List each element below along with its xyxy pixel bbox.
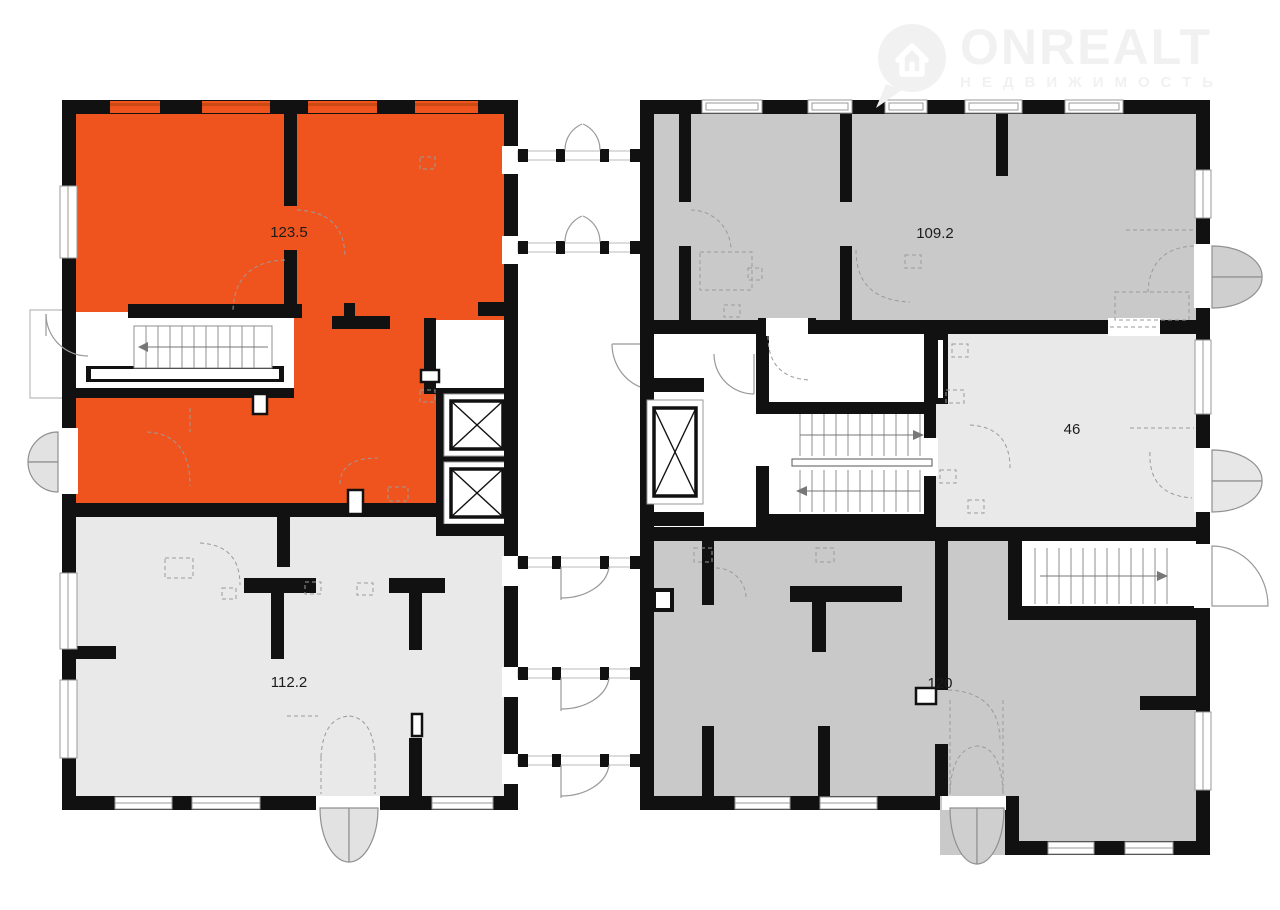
logo-brand-text: ONREALT (960, 22, 1212, 72)
door-leaf (28, 432, 58, 462)
floor-plan-drawing: 123.5 112.2 (0, 0, 1280, 910)
wall-nub-slot (656, 592, 670, 608)
unit-109-2-entrance-east (1194, 244, 1262, 308)
elevator-2 (444, 462, 510, 524)
unit-109-2-label: 109.2 (916, 225, 954, 242)
door-leaf (950, 808, 977, 864)
connector-door-south-2 (518, 667, 640, 711)
door-leaf (320, 808, 349, 862)
door-leaf (1212, 277, 1262, 308)
unit-109-2-area[interactable] (640, 100, 1210, 335)
door-leaf (977, 808, 1004, 864)
connector-door-north-2 (518, 216, 640, 254)
door-leaf (349, 808, 378, 862)
left-entrance-south (316, 796, 380, 862)
door-leaf (28, 462, 58, 492)
left-entrance-west (28, 428, 78, 494)
unit-46-label: 46 (1064, 421, 1081, 438)
unit-112-2-label: 112.2 (271, 674, 307, 691)
elevator-3 (647, 400, 703, 504)
logo-pin-icon (868, 22, 950, 110)
onrealt-watermark: ONREALT НЕДВИЖИМОСТЬ (868, 22, 1224, 110)
connector-door-south-3 (518, 754, 640, 798)
logo-subtitle-text: НЕДВИЖИМОСТЬ (960, 74, 1224, 91)
right-building: 109.2 46 120 (640, 100, 1268, 864)
floor-plan-page: 123.5 112.2 (0, 0, 1280, 910)
staircase-left (134, 326, 272, 368)
door-leaf (1212, 246, 1262, 277)
door-leaf (1212, 450, 1262, 481)
stairwell-120 (1008, 541, 1196, 614)
connector-door-north-1 (518, 124, 640, 162)
unit-46-entrance-east (1194, 448, 1262, 512)
unit-120-label: 120 (927, 675, 952, 692)
connector-door-south-1 (518, 556, 640, 600)
door-leaf (1212, 546, 1268, 606)
door-leaf (1212, 481, 1262, 512)
connector-passage (502, 124, 656, 798)
elevator-1 (444, 394, 510, 456)
unit-123-5-label: 123.5 (270, 224, 308, 241)
stairwell-exit-east (1194, 544, 1268, 608)
left-building: 123.5 112.2 (28, 100, 518, 862)
